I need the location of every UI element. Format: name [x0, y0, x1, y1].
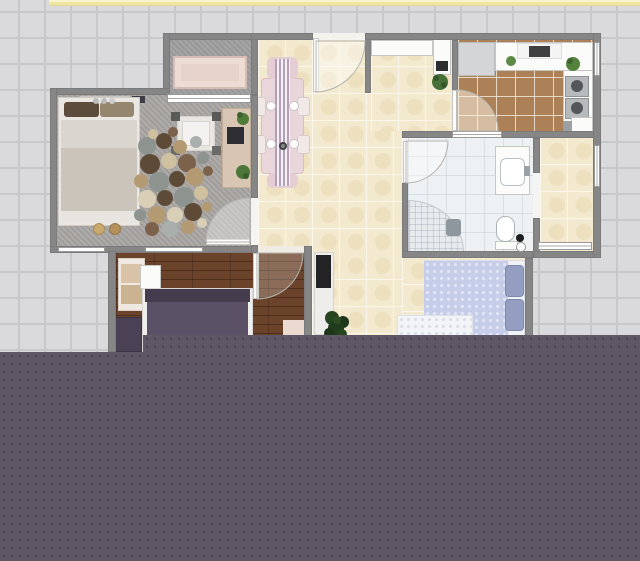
wall-balcony-right [251, 33, 258, 95]
dark-overlay-panel-lower [0, 352, 640, 561]
bed1-stool-right [109, 223, 121, 235]
fridge [458, 42, 495, 76]
rug-circle [181, 220, 195, 234]
rug-circle [197, 218, 207, 228]
entry-door-opening [313, 33, 365, 40]
toilet-tank [495, 241, 518, 250]
bath-door-leaf [403, 141, 408, 183]
bed2-headboard [145, 289, 250, 302]
bed1-blanket-main [61, 148, 137, 211]
bedroom1-door-leaf [206, 239, 250, 245]
wall-dining-left-lower [251, 245, 258, 253]
kitchen-plant-leaf [567, 58, 573, 64]
shelf-cup-1 [93, 98, 99, 104]
rug-circle [138, 137, 156, 155]
wardrobe-box-2 [121, 285, 142, 304]
wall-entry-stub [365, 33, 371, 93]
shelf-cup-2 [101, 98, 107, 104]
wardrobe-box-1 [121, 264, 142, 283]
rug-circle [162, 221, 178, 237]
rug-circle [194, 186, 208, 200]
wall-bath-right-upper [533, 138, 540, 173]
laptop [227, 127, 244, 144]
rug-circle [169, 171, 185, 187]
rug-circle [202, 202, 212, 212]
bed1-stool-left [93, 223, 105, 235]
rug-circle [190, 136, 202, 148]
wall-balcony-left [163, 33, 170, 95]
rug-circle [168, 127, 178, 137]
wall-top-a [251, 33, 313, 40]
plate-1 [266, 101, 276, 111]
plate-4 [289, 139, 299, 149]
wall-bedroom1-top [50, 88, 170, 95]
burner-knob-2 [571, 102, 583, 114]
toilet-roll [516, 242, 526, 252]
balcony-slider [167, 94, 251, 103]
yellow-top-strip [49, 0, 640, 6]
bedroom2-shelf [140, 265, 161, 289]
rug-circle [161, 153, 177, 169]
wall-corridor-bottom [533, 251, 601, 258]
kitchen-herb [506, 56, 516, 66]
bedroom1-door-gap [251, 198, 258, 245]
side-table-2 [212, 112, 221, 121]
rug-circle [186, 168, 204, 186]
wall-bath-left-lower [402, 183, 408, 258]
plate-2 [289, 101, 299, 111]
kitchen-right-window [594, 42, 600, 76]
wall-top-b [365, 33, 600, 40]
floorplan-canvas [0, 0, 640, 561]
tv [316, 255, 331, 288]
wall-balcony-top [163, 33, 258, 40]
vanity-sink [500, 158, 525, 186]
rug-circle [134, 174, 148, 188]
table-runner [275, 59, 290, 186]
shoes [436, 61, 448, 71]
rug-circle [140, 154, 160, 174]
bed1-pillow-light [100, 102, 134, 117]
bath-trash-bin [516, 234, 524, 242]
entry-plant-leaf-1 [433, 75, 439, 81]
wall-bedroom2-left [108, 251, 116, 352]
balcony-mat [173, 56, 247, 89]
bed1-blanket-top [61, 120, 137, 148]
nightstand [115, 317, 142, 352]
rug-circle [145, 222, 159, 236]
wall-bedroom1-left [50, 88, 57, 253]
rug-circle [197, 152, 209, 164]
shower-head [446, 219, 461, 236]
living-plant-center [333, 316, 341, 324]
plate-3 [266, 139, 276, 149]
bath-right-door-gap [533, 173, 540, 218]
faucet [524, 166, 530, 176]
bed1-blanket-foot [61, 211, 137, 223]
cooktop-dark [529, 46, 550, 57]
shelf-cup-3 [109, 98, 115, 104]
rug-circle [173, 140, 187, 154]
entry-cabinet [371, 40, 433, 56]
wall-dining-left-upper [251, 95, 258, 198]
toilet-bowl [496, 216, 515, 242]
bed3-pillow-2 [505, 299, 524, 331]
kitchen-door-threshold [452, 131, 502, 138]
rug-circle [203, 166, 213, 176]
table-centerpiece-inner [281, 144, 285, 148]
wall-bath-bottom [402, 251, 533, 258]
bedrooms-divider-window [145, 247, 203, 252]
side-table-4 [212, 146, 221, 155]
rug-circle [148, 129, 158, 139]
side-table-1 [171, 112, 180, 121]
desk-plant-top-leaf [237, 112, 243, 118]
rug-circle [134, 209, 146, 221]
entry-plant-leaf-2 [441, 82, 447, 88]
rug-circle [138, 190, 156, 208]
corridor-bottom-window [538, 242, 592, 250]
rug-circle [157, 190, 173, 206]
desk-plant-bottom-leaf [243, 173, 249, 179]
bed3-pillow-1 [505, 265, 524, 297]
kitchen-door-leaf [452, 90, 457, 131]
bed1-pillow-dark [64, 102, 99, 117]
bedroom2-door-threshold [258, 246, 304, 253]
entry-door-leaf [313, 38, 319, 92]
corridor-floor [540, 138, 593, 251]
bedroom2-door-leaf [253, 253, 259, 299]
bedroom1-window [58, 247, 105, 252]
rug-circle [149, 172, 169, 192]
burner-knob-1 [571, 80, 583, 92]
corridor-right-window [594, 145, 600, 187]
